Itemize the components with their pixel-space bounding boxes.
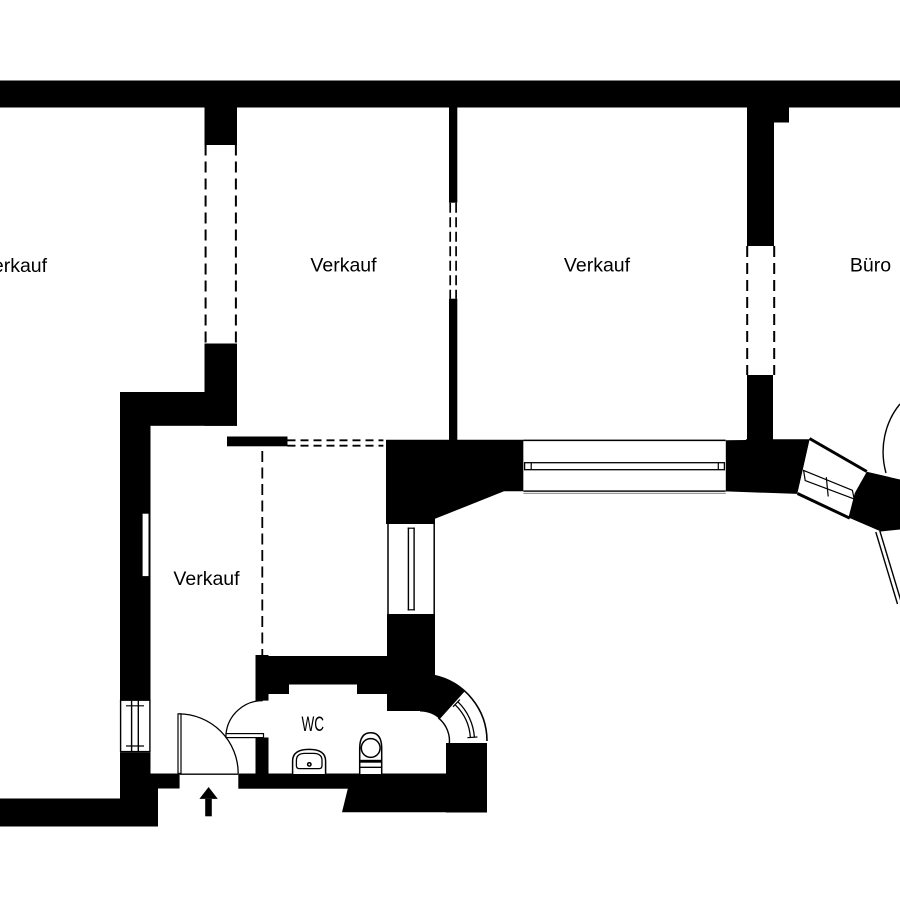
svg-text:Verkauf: Verkauf <box>564 255 631 277</box>
svg-text:WC: WC <box>302 712 325 736</box>
svg-text:Verkauf: Verkauf <box>310 255 377 277</box>
svg-text:Verkauf: Verkauf <box>0 255 48 277</box>
svg-text:Büro: Büro <box>850 255 891 277</box>
svg-text:Verkauf: Verkauf <box>173 568 240 590</box>
